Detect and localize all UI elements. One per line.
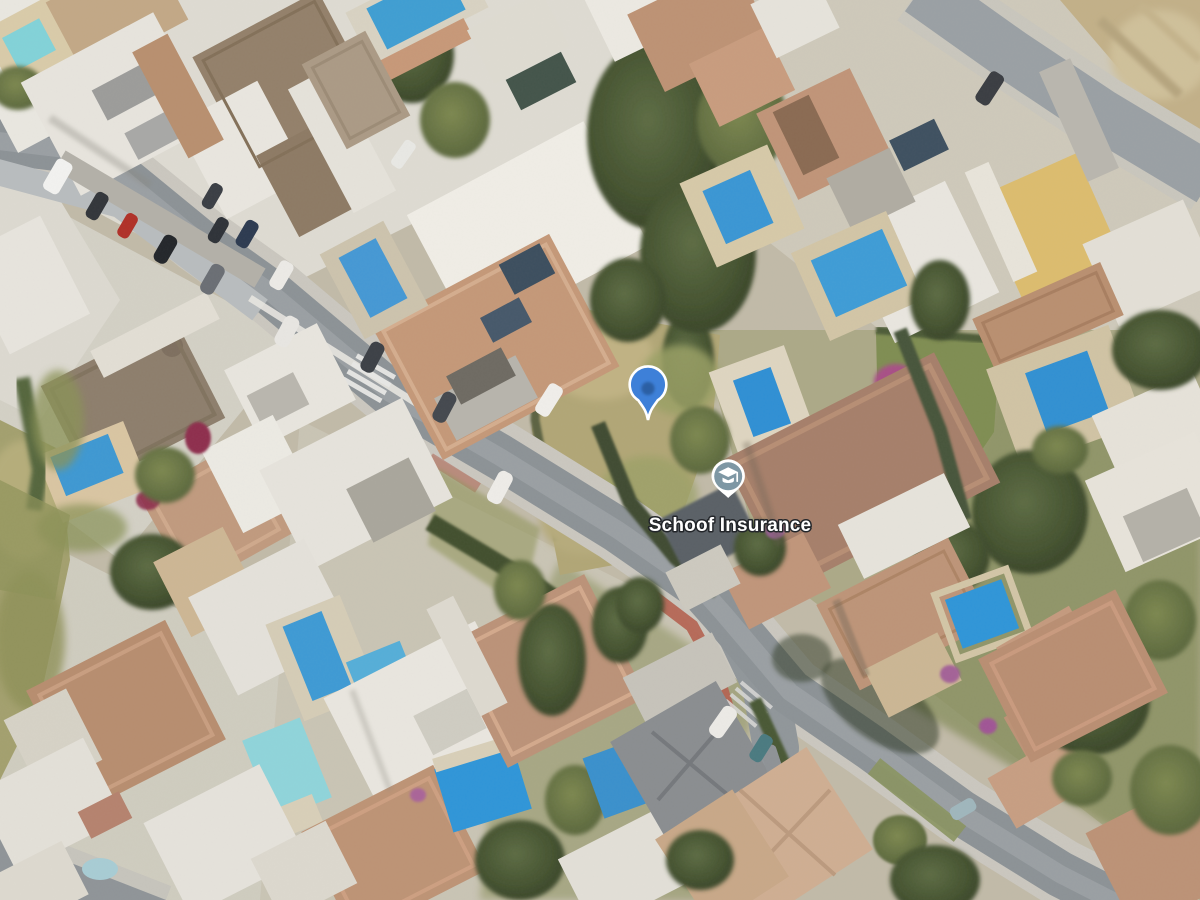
- svg-text:Schoof Insurance: Schoof Insurance: [649, 515, 812, 536]
